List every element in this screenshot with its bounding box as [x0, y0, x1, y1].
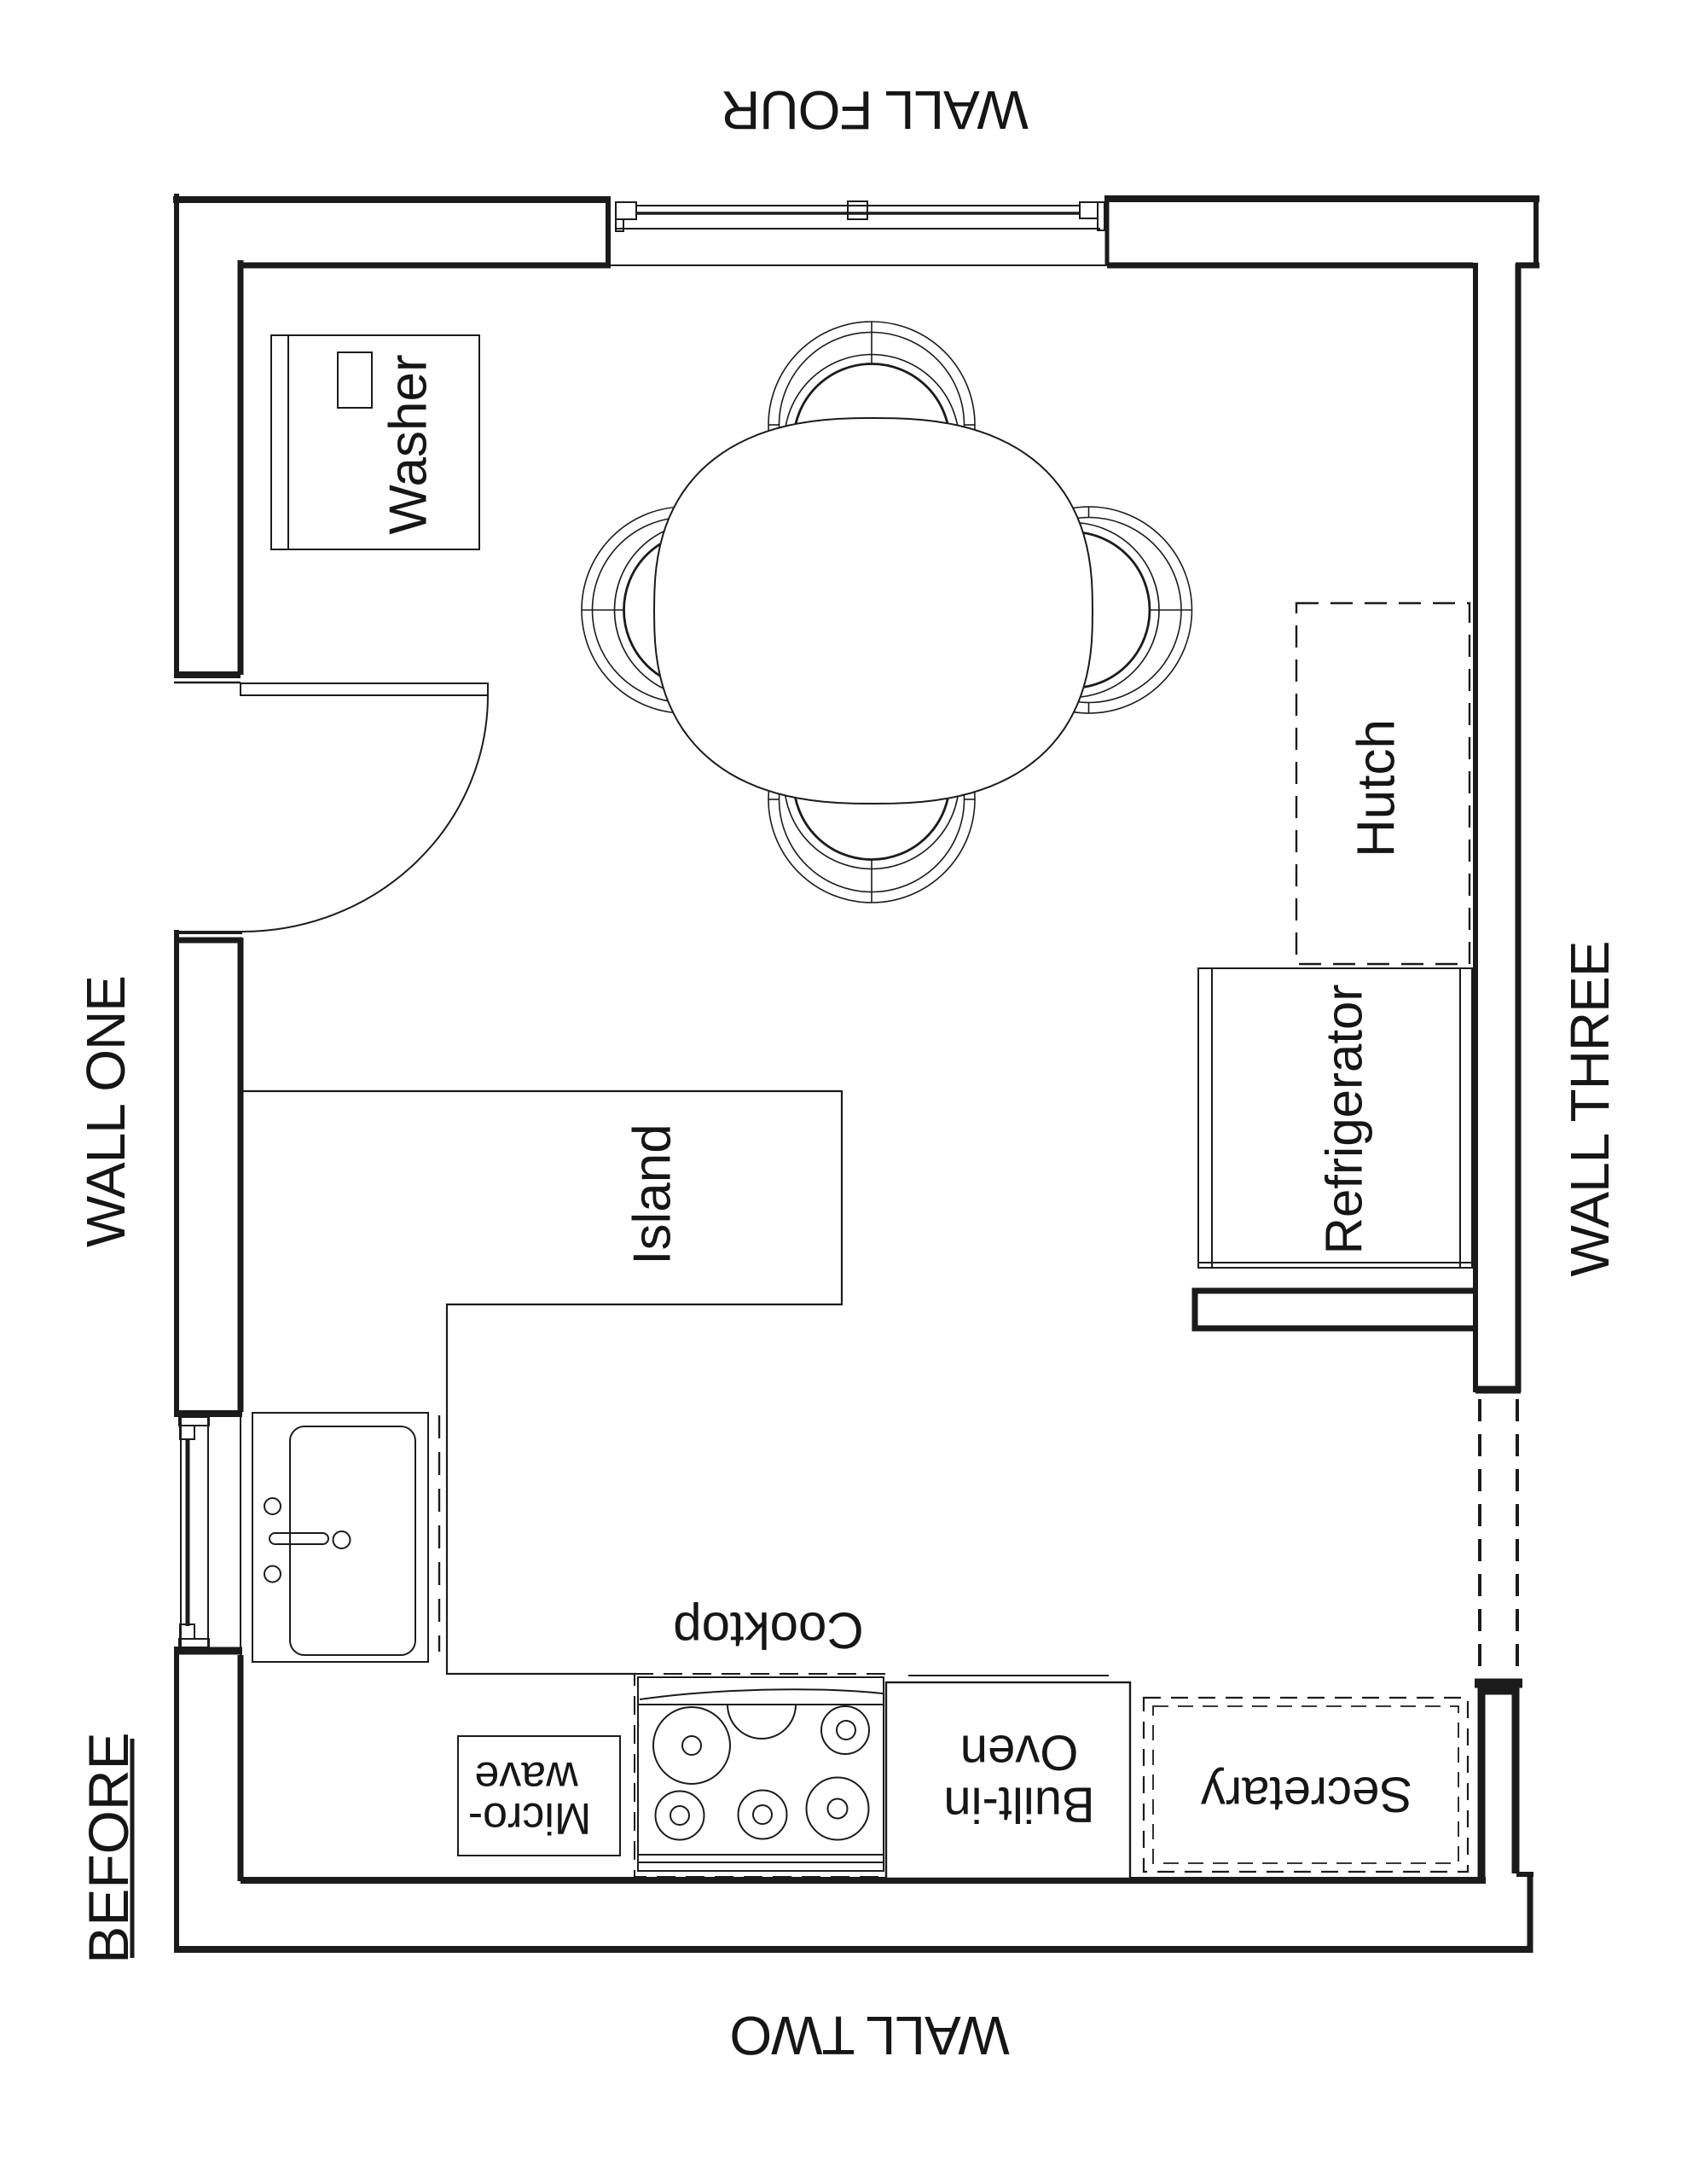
svg-text:WALL FOUR: WALL FOUR	[722, 79, 1029, 141]
svg-text:WALL THREE: WALL THREE	[1559, 941, 1620, 1276]
svg-text:Island: Island	[623, 1124, 682, 1264]
svg-text:Secretary: Secretary	[1201, 1767, 1412, 1822]
svg-text:Hutch: Hutch	[1348, 719, 1406, 857]
svg-text:wave: wave	[474, 1752, 578, 1802]
svg-text:WALL ONE: WALL ONE	[75, 976, 136, 1247]
svg-text:Washer: Washer	[380, 354, 438, 534]
svg-text:Cooktop: Cooktop	[673, 1602, 863, 1659]
svg-text:Oven: Oven	[960, 1725, 1079, 1780]
svg-text:WALL TWO: WALL TWO	[730, 2005, 1009, 2066]
svg-text:Refrigerator: Refrigerator	[1316, 985, 1373, 1255]
svg-text:Built-in: Built-in	[943, 1777, 1094, 1833]
